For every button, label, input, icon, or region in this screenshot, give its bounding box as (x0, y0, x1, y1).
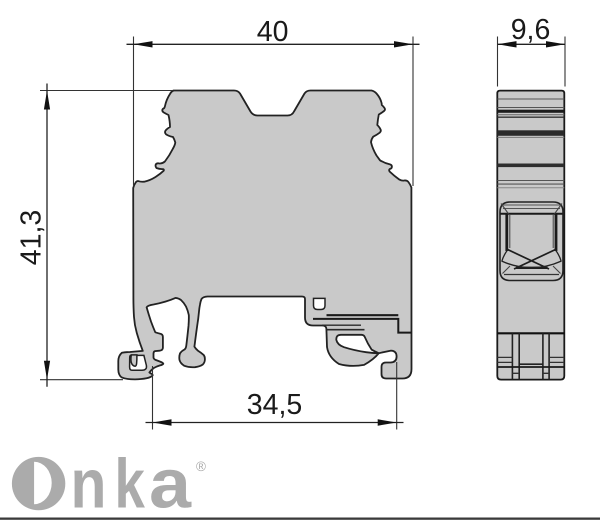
svg-text:a: a (149, 445, 192, 521)
svg-text:41,3: 41,3 (16, 210, 48, 265)
svg-text:34,5: 34,5 (247, 389, 302, 421)
svg-text:®: ® (196, 459, 206, 474)
svg-text:n: n (71, 444, 107, 521)
svg-text:40: 40 (257, 16, 289, 48)
svg-text:9,6: 9,6 (511, 14, 551, 46)
svg-text:k: k (115, 445, 145, 521)
